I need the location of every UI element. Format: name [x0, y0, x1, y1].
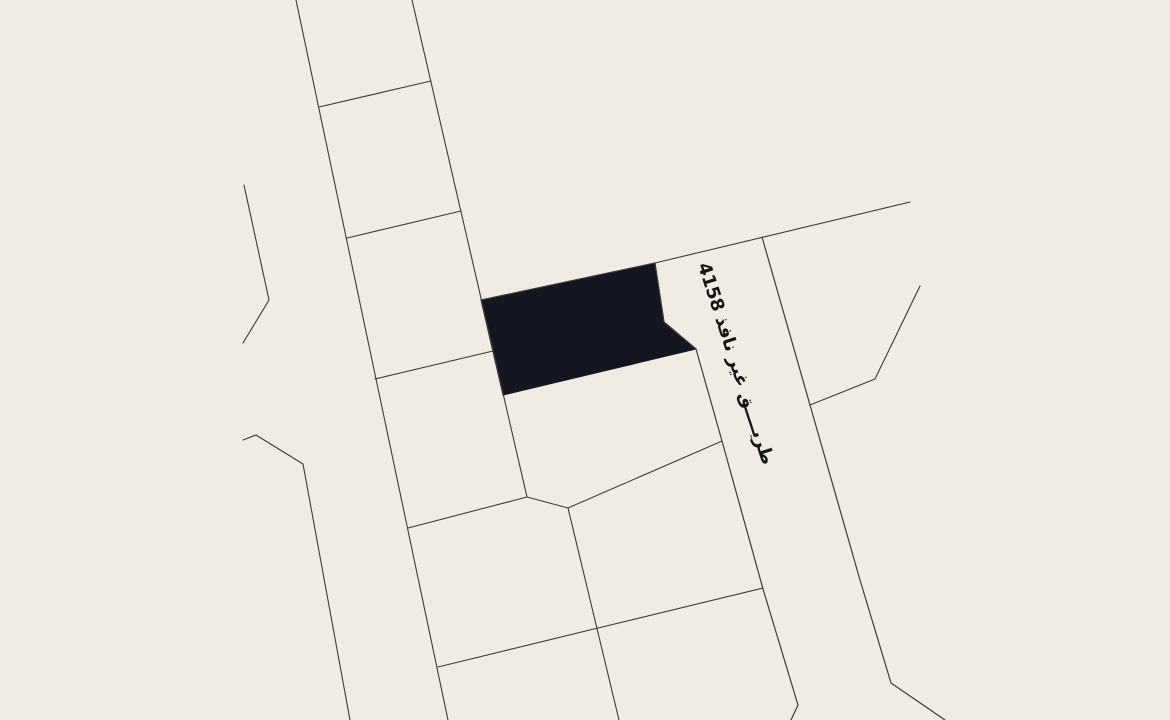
- block-right-boundary: [412, 0, 527, 497]
- parcel-divider-1: [319, 81, 431, 107]
- west-boundary-lower: [243, 435, 350, 720]
- parcel-divider-2: [347, 211, 461, 238]
- south-long-divider: [438, 588, 763, 667]
- block-left-boundary: [296, 0, 448, 720]
- parcel-divider-4: [408, 497, 527, 528]
- east-corner-boundary: [810, 286, 920, 405]
- west-boundary-upper: [243, 185, 269, 343]
- south-diagonal-divider: [568, 441, 722, 508]
- south-vertical-divider: [527, 497, 619, 720]
- map-canvas[interactable]: طريــــق غير نافذ 4158: [0, 0, 1170, 720]
- selected-parcel[interactable]: [481, 263, 696, 395]
- north-diagonal-boundary: [481, 202, 910, 300]
- parcel-divider-3: [375, 351, 493, 379]
- parcel-map-svg: [0, 0, 1170, 720]
- road-east-edge: [762, 237, 945, 720]
